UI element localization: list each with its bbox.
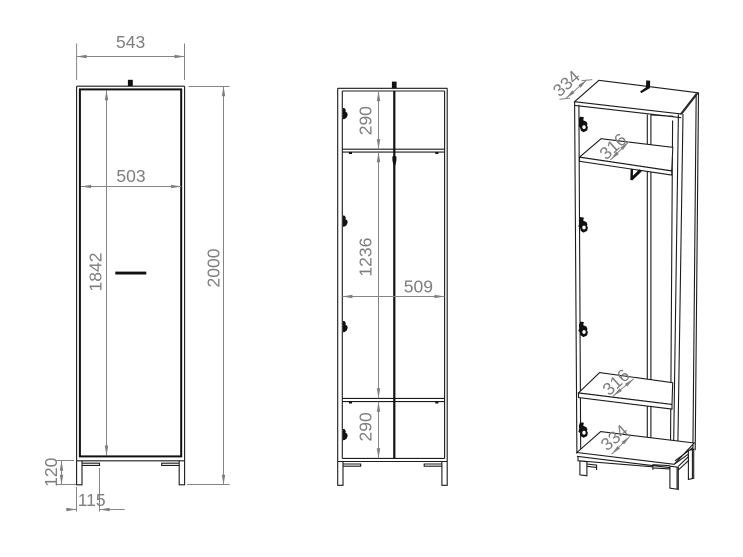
svg-text:543: 543 <box>116 32 145 52</box>
svg-text:1236: 1236 <box>356 238 376 277</box>
svg-text:120: 120 <box>41 457 61 486</box>
svg-text:115: 115 <box>78 490 106 510</box>
svg-text:509: 509 <box>404 277 433 297</box>
svg-text:290: 290 <box>355 106 375 135</box>
svg-text:2000: 2000 <box>203 248 223 287</box>
svg-text:290: 290 <box>356 412 376 441</box>
svg-text:1842: 1842 <box>86 253 106 292</box>
svg-text:503: 503 <box>116 166 145 186</box>
